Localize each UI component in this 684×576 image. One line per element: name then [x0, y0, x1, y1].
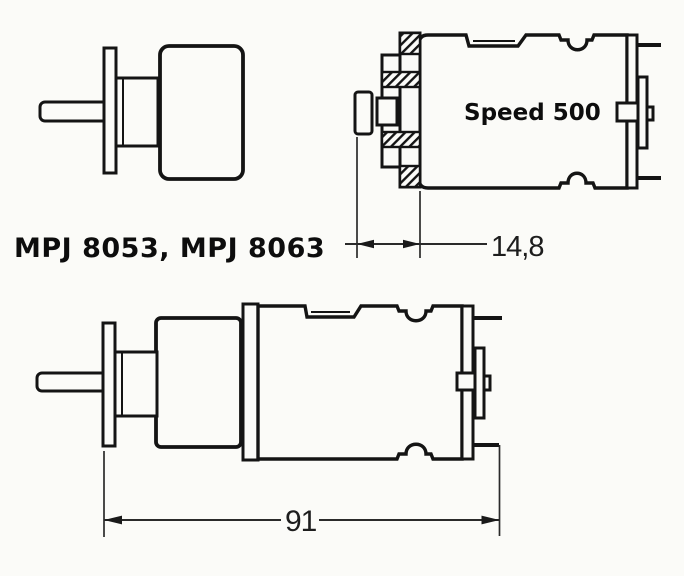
product-label: MPJ 8053, MPJ 8063 — [14, 233, 325, 264]
pinion-collar — [400, 33, 420, 187]
mounting-flange — [104, 48, 116, 173]
rear-shaft-tip — [647, 107, 653, 120]
hatch-top-cap — [400, 33, 420, 54]
motor-can-outline — [258, 306, 462, 459]
output-shaft — [37, 373, 109, 391]
rear-shaft-tip — [484, 376, 490, 390]
pinion-gear — [377, 98, 397, 125]
hatch-lower-band — [382, 132, 420, 147]
arrow-right-icon — [482, 516, 500, 525]
hatch-bottom-cap — [400, 166, 420, 187]
dimension-value-14-8: 14,8 — [491, 231, 543, 263]
arrow-left-icon — [357, 240, 374, 249]
arrow-left-icon — [104, 516, 122, 525]
technical-drawing-page: Speed 500 14,8 MPJ 8053, MPJ 8063 — [0, 0, 684, 576]
motor-label: Speed 500 — [464, 100, 601, 126]
dimension-value-91: 91 — [285, 505, 317, 538]
arrow-right-icon — [403, 240, 420, 249]
gearmotor-drawing: Speed 500 14,8 MPJ 8053, MPJ 8063 — [0, 0, 684, 576]
shaft-bushing — [355, 92, 372, 134]
pinion-section — [355, 33, 420, 187]
rear-shaft-hub — [457, 373, 475, 390]
motor-front-plate — [243, 304, 258, 460]
motor-section-view: Speed 500 — [355, 33, 661, 188]
motor-body-outline — [160, 46, 243, 179]
mounting-flange — [103, 323, 115, 446]
hatch-upper-band — [382, 72, 420, 87]
rear-shaft-hub — [617, 103, 638, 121]
output-shaft — [40, 102, 110, 121]
gearbox-front-view — [40, 46, 243, 179]
gearmotor-side-view — [37, 304, 502, 460]
gearbox-housing — [156, 318, 241, 447]
